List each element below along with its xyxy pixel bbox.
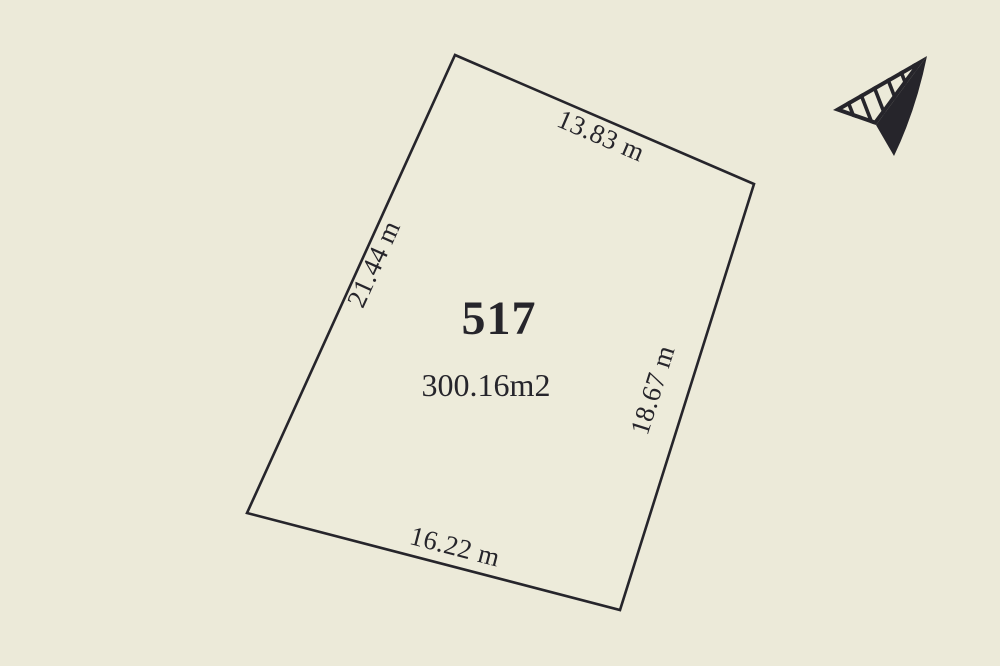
north-arrow-icon <box>833 44 930 156</box>
lot-number: 517 <box>462 295 537 343</box>
lot-area: 300.16m2 <box>422 369 551 401</box>
site-plan: 13.83 m 21.44 m 18.67 m 16.22 m 517 300.… <box>0 0 1000 666</box>
